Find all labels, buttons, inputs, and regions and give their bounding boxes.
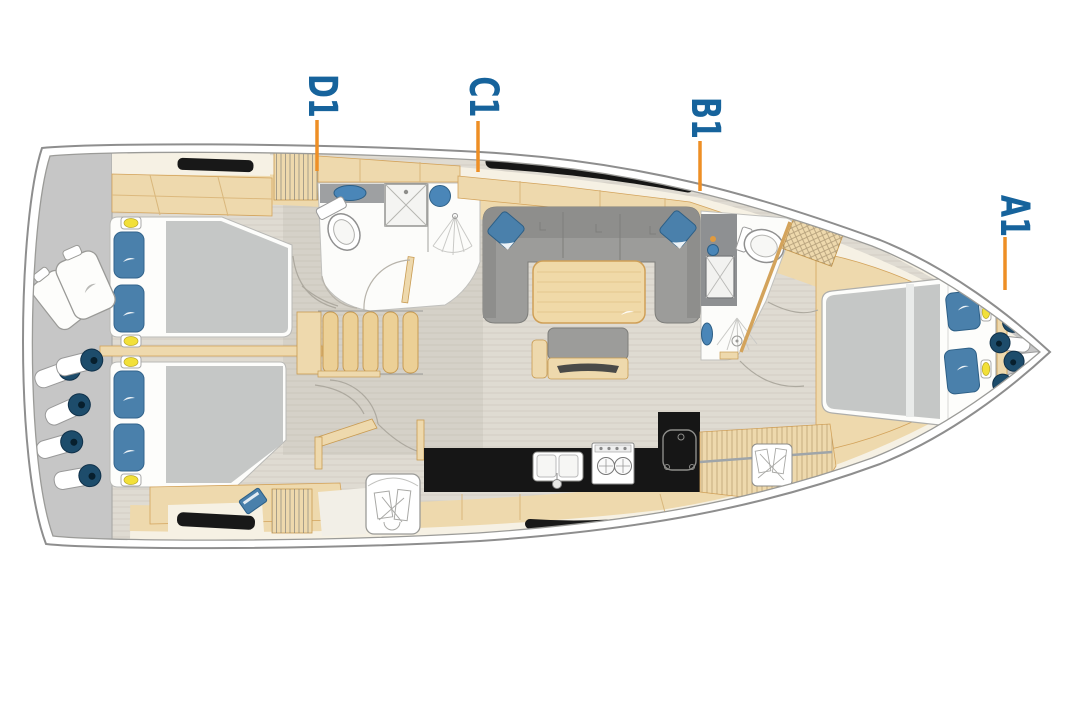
interior <box>18 130 1060 560</box>
sink-icon <box>708 245 719 256</box>
cabin-label-b1: B1 <box>685 97 725 139</box>
cabin-label-c1: C1 <box>463 76 503 117</box>
head-compartment-d <box>315 183 480 311</box>
salon-table <box>533 261 645 323</box>
folding-seat-sketch <box>752 444 792 486</box>
floor-plan-drawing <box>0 0 1068 712</box>
pillow <box>114 285 144 332</box>
storage-bench <box>700 424 836 499</box>
pillow <box>114 371 144 418</box>
mattress-forward <box>826 284 940 419</box>
pillow <box>944 347 980 394</box>
stove-burner-icon <box>592 443 634 484</box>
washbasin <box>430 186 451 207</box>
cabin-label-a1: A1 <box>994 195 1034 237</box>
pillow <box>114 424 144 471</box>
yacht-floor-plan: D1 C1 B1 A1 <box>0 0 1068 712</box>
wet-locker <box>366 474 420 534</box>
pillow <box>114 232 144 278</box>
cabin-label-d1: D1 <box>302 74 342 118</box>
